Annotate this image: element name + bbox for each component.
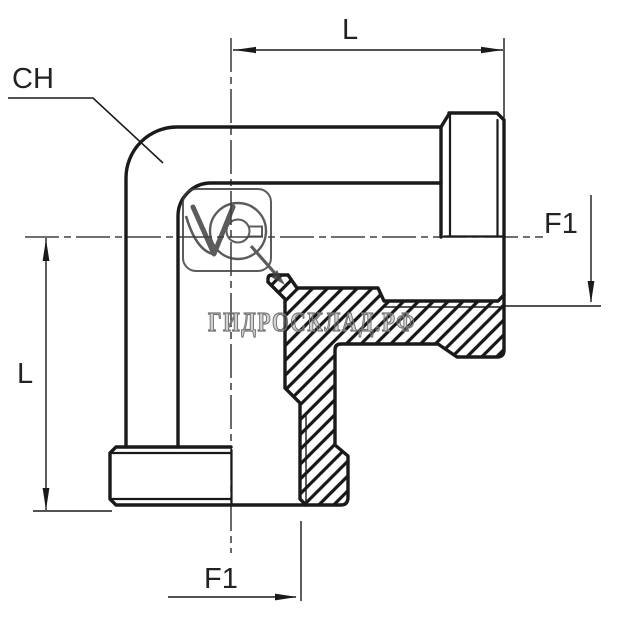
logo-circle-inner: [227, 220, 250, 243]
dim-left-arrow-bottom: [43, 488, 50, 510]
logo-g-bar: [250, 227, 263, 237]
bottom-hex-chamfer-lines: [112, 453, 231, 499]
dim-left-line: [33, 238, 112, 511]
elbow-fitting-drawing: CH L L F1 F1 ГИДРОСКЛАД.РФ: [0, 0, 629, 641]
label-hex-size: CH: [12, 63, 54, 95]
dim-left-arrow-top: [43, 239, 50, 261]
label-length-left: L: [17, 358, 33, 390]
logo-circle-outer: [210, 203, 266, 259]
dim-top-arrow-right: [481, 47, 503, 53]
dim-top-arrow-left: [234, 47, 256, 53]
label-length-top: L: [342, 14, 358, 46]
watermark-site-text: ГИДРОСКЛАД.РФ: [208, 307, 416, 337]
ch-leader-line: [8, 98, 163, 163]
dim-f1-right-arrow: [588, 281, 595, 303]
label-thread-bottom: F1: [204, 563, 238, 595]
dim-top-line: [233, 38, 504, 118]
right-hex-chamfer-lines: [450, 114, 498, 236]
label-thread-right: F1: [544, 208, 578, 240]
technical-drawing-canvas: CH L L F1 F1 ГИДРОСКЛАД.РФ: [0, 0, 629, 641]
dim-f1-bottom-arrow: [275, 594, 297, 601]
